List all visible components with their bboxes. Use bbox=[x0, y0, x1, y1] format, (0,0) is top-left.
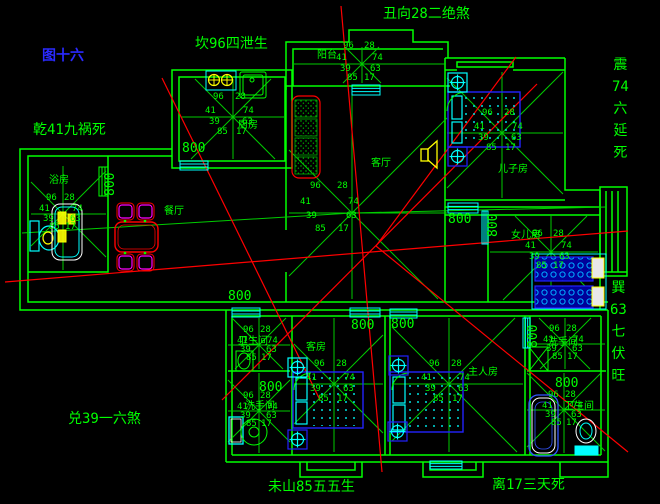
star-number-e-bath-left: 74 bbox=[72, 205, 83, 214]
star-number-sw-guest-room: 39 bbox=[310, 385, 321, 394]
figure-number-label: 图十六 bbox=[42, 49, 84, 63]
annotation-right-lower-part: 伏 bbox=[611, 347, 625, 361]
dimension-label-3: 800 bbox=[487, 214, 500, 237]
star-number-w-master-room: 41 bbox=[421, 374, 432, 383]
star-number-w-kitchen: 41 bbox=[205, 107, 216, 116]
star-number-s2-master-room: 17 bbox=[452, 395, 463, 404]
annotation-top: 丑向28二绝煞 bbox=[383, 7, 470, 21]
star-number-nw-master-room: 96 bbox=[429, 360, 440, 369]
star-number-s1-wc-2: 85 bbox=[246, 420, 257, 429]
star-number-nw-bath-left: 96 bbox=[46, 194, 57, 203]
star-number-ne-daughter-room: 28 bbox=[553, 230, 564, 239]
star-number-ne-son-room: 28 bbox=[504, 109, 515, 118]
star-number-w-daughter-room: 41 bbox=[525, 242, 536, 251]
annotation-right-lower-part: 63 bbox=[610, 303, 627, 317]
annotation-right-upper-part: 74 bbox=[612, 80, 629, 94]
star-number-s1-kitchen: 85 bbox=[217, 128, 228, 137]
porch-3 bbox=[560, 462, 608, 477]
star-number-nw-wc-2: 96 bbox=[243, 392, 254, 401]
dimension-label-4: 800 bbox=[351, 319, 374, 332]
star-number-w-son-room: 41 bbox=[474, 123, 485, 132]
star-number-s2-shower-room: 17 bbox=[567, 353, 578, 362]
living-plant bbox=[292, 96, 320, 178]
star-number-ne-balcony: 28 bbox=[364, 42, 375, 51]
floor-plan-screenshot: 图十六 丑向28二绝煞 坎96四泄生 乾41九祸死 兑39一六煞 未山85五五生… bbox=[0, 0, 660, 504]
room-label-son-room: 儿子房 bbox=[498, 165, 528, 175]
star-number-nw-balcony: 96 bbox=[343, 42, 354, 51]
star-number-s2-bath-br: 17 bbox=[566, 419, 577, 428]
star-number-ne-living: 28 bbox=[337, 182, 348, 191]
star-number-ne-wc-1: 28 bbox=[260, 326, 271, 335]
star-number-e-son-room: 74 bbox=[512, 123, 523, 132]
annotation-bottom-center: 未山85五五生 bbox=[268, 480, 355, 494]
star-number-e-guest-room: 74 bbox=[344, 374, 355, 383]
star-number-nw-wc-1: 96 bbox=[243, 326, 254, 335]
star-number-nw-daughter-room: 96 bbox=[532, 230, 543, 239]
annotation-right-upper-part: 死 bbox=[613, 146, 627, 160]
room-label-guest-room: 客房 bbox=[306, 343, 326, 353]
star-number-s1-living: 85 bbox=[315, 225, 326, 234]
star-number-e-kitchen: 74 bbox=[243, 107, 254, 116]
annotation-left: 乾41九祸死 bbox=[33, 123, 106, 137]
ceiling-lamp-icon-0 bbox=[448, 73, 467, 92]
star-number-ne-kitchen: 28 bbox=[235, 93, 246, 102]
annotation-bottom-right: 离17三天死 bbox=[492, 478, 565, 492]
star-number-sw-son-room: 39 bbox=[478, 134, 489, 143]
star-number-s1-son-room: 85 bbox=[486, 144, 497, 153]
dimension-label-6: 800 bbox=[259, 381, 282, 394]
star-number-s1-daughter-room: 85 bbox=[536, 262, 547, 271]
dimension-label-7: 800 bbox=[555, 377, 578, 390]
star-number-se-living: 63 bbox=[346, 212, 357, 221]
star-number-s1-balcony: 85 bbox=[347, 74, 358, 83]
porch-1 bbox=[300, 462, 362, 477]
star-number-s1-bath-br: 85 bbox=[551, 419, 562, 428]
star-number-s2-balcony: 17 bbox=[364, 74, 375, 83]
star-number-s1-wc-1: 85 bbox=[246, 354, 257, 363]
star-number-nw-guest-room: 96 bbox=[314, 360, 325, 369]
star-number-se-master-room: 63 bbox=[458, 385, 469, 394]
star-number-sw-living: 39 bbox=[306, 212, 317, 221]
star-number-s2-kitchen: 17 bbox=[236, 128, 247, 137]
star-number-se-guest-room: 63 bbox=[343, 385, 354, 394]
annotation-bottom-left: 兑39一六煞 bbox=[68, 412, 141, 426]
bottom-block-right-wall bbox=[601, 310, 608, 462]
ceiling-lamp-icon-1 bbox=[448, 147, 467, 166]
dimension-label-9: 800 bbox=[228, 290, 251, 303]
annotation-right-upper: 震74六延死 bbox=[612, 58, 629, 168]
star-number-ne-shower-room: 28 bbox=[566, 325, 577, 334]
room-label-master-room: 主人房 bbox=[468, 368, 498, 378]
kitchen-stove bbox=[206, 71, 236, 90]
star-number-w-balcony: 41 bbox=[336, 54, 347, 63]
star-number-ne-bath-left: 28 bbox=[64, 194, 75, 203]
star-number-s1-guest-room: 85 bbox=[318, 395, 329, 404]
star-number-w-bath-left: 41 bbox=[39, 205, 50, 214]
star-number-se-kitchen: 63 bbox=[242, 118, 253, 127]
dimension-label-0: 800 bbox=[182, 142, 205, 155]
star-number-nw-son-room: 96 bbox=[482, 109, 493, 118]
star-number-w-living: 41 bbox=[300, 198, 311, 207]
star-number-se-son-room: 63 bbox=[511, 134, 522, 143]
star-number-s1-bath-left: 85 bbox=[49, 223, 60, 232]
dimension-label-2: 800 bbox=[448, 213, 471, 226]
star-number-s2-wc-2: 17 bbox=[261, 420, 272, 429]
room-label-dining: 餐厅 bbox=[164, 207, 184, 217]
star-number-ne-bath-br: 28 bbox=[565, 391, 576, 400]
annotation-top-left: 坎96四泄生 bbox=[195, 37, 268, 51]
room-label-bath-left: 浴房 bbox=[49, 176, 69, 186]
star-number-nw-bath-br: 96 bbox=[548, 391, 559, 400]
dimension-label-5: 800 bbox=[391, 318, 414, 331]
star-number-s2-bath-left: 17 bbox=[65, 223, 76, 232]
star-number-nw-shower-room: 96 bbox=[549, 325, 560, 334]
son-room-top-wall bbox=[445, 58, 565, 70]
star-number-s2-living: 17 bbox=[338, 225, 349, 234]
star-number-ne-master-room: 28 bbox=[451, 360, 462, 369]
son-room-right-wall bbox=[565, 58, 600, 190]
dimension-label-8: 800 bbox=[527, 325, 540, 348]
annotation-right-lower: 巽63七伏旺 bbox=[610, 281, 627, 391]
star-number-s2-wc-1: 17 bbox=[261, 354, 272, 363]
star-number-s1-shower-room: 85 bbox=[552, 353, 563, 362]
son-room-top-notch bbox=[457, 62, 513, 67]
star-number-w-guest-room: 41 bbox=[306, 374, 317, 383]
star-number-sw-master-room: 39 bbox=[425, 385, 436, 394]
annotation-right-upper-part: 六 bbox=[613, 102, 627, 116]
ceiling-lamp-icon-5 bbox=[388, 422, 407, 441]
annotation-right-upper-part: 延 bbox=[613, 124, 627, 138]
star-number-e-balcony: 74 bbox=[372, 54, 383, 63]
star-number-s2-guest-room: 17 bbox=[337, 395, 348, 404]
star-number-e-master-room: 74 bbox=[459, 374, 470, 383]
room-label-balcony: 阳台 bbox=[317, 51, 337, 61]
star-number-s2-daughter-room: 17 bbox=[553, 262, 564, 271]
star-number-e-daughter-room: 74 bbox=[561, 242, 572, 251]
star-number-s2-son-room: 17 bbox=[505, 144, 516, 153]
star-number-nw-kitchen: 96 bbox=[213, 93, 224, 102]
star-number-s1-master-room: 85 bbox=[433, 395, 444, 404]
dining-chairs bbox=[117, 203, 154, 271]
star-number-e-living: 74 bbox=[348, 198, 359, 207]
star-number-ne-guest-room: 28 bbox=[336, 360, 347, 369]
annotation-right-upper-part: 震 bbox=[613, 58, 627, 72]
room-label-living: 客厅 bbox=[371, 159, 391, 169]
annotation-right-lower-part: 旺 bbox=[611, 369, 625, 383]
annotation-right-lower-part: 七 bbox=[611, 325, 625, 339]
living-speaker bbox=[421, 141, 437, 168]
star-number-sw-kitchen: 39 bbox=[209, 118, 220, 127]
star-number-nw-living: 96 bbox=[310, 182, 321, 191]
ceiling-lamp-icon-3 bbox=[288, 430, 307, 449]
dimension-label-1: 800 bbox=[104, 173, 117, 196]
annotation-right-lower-part: 巽 bbox=[611, 281, 625, 295]
